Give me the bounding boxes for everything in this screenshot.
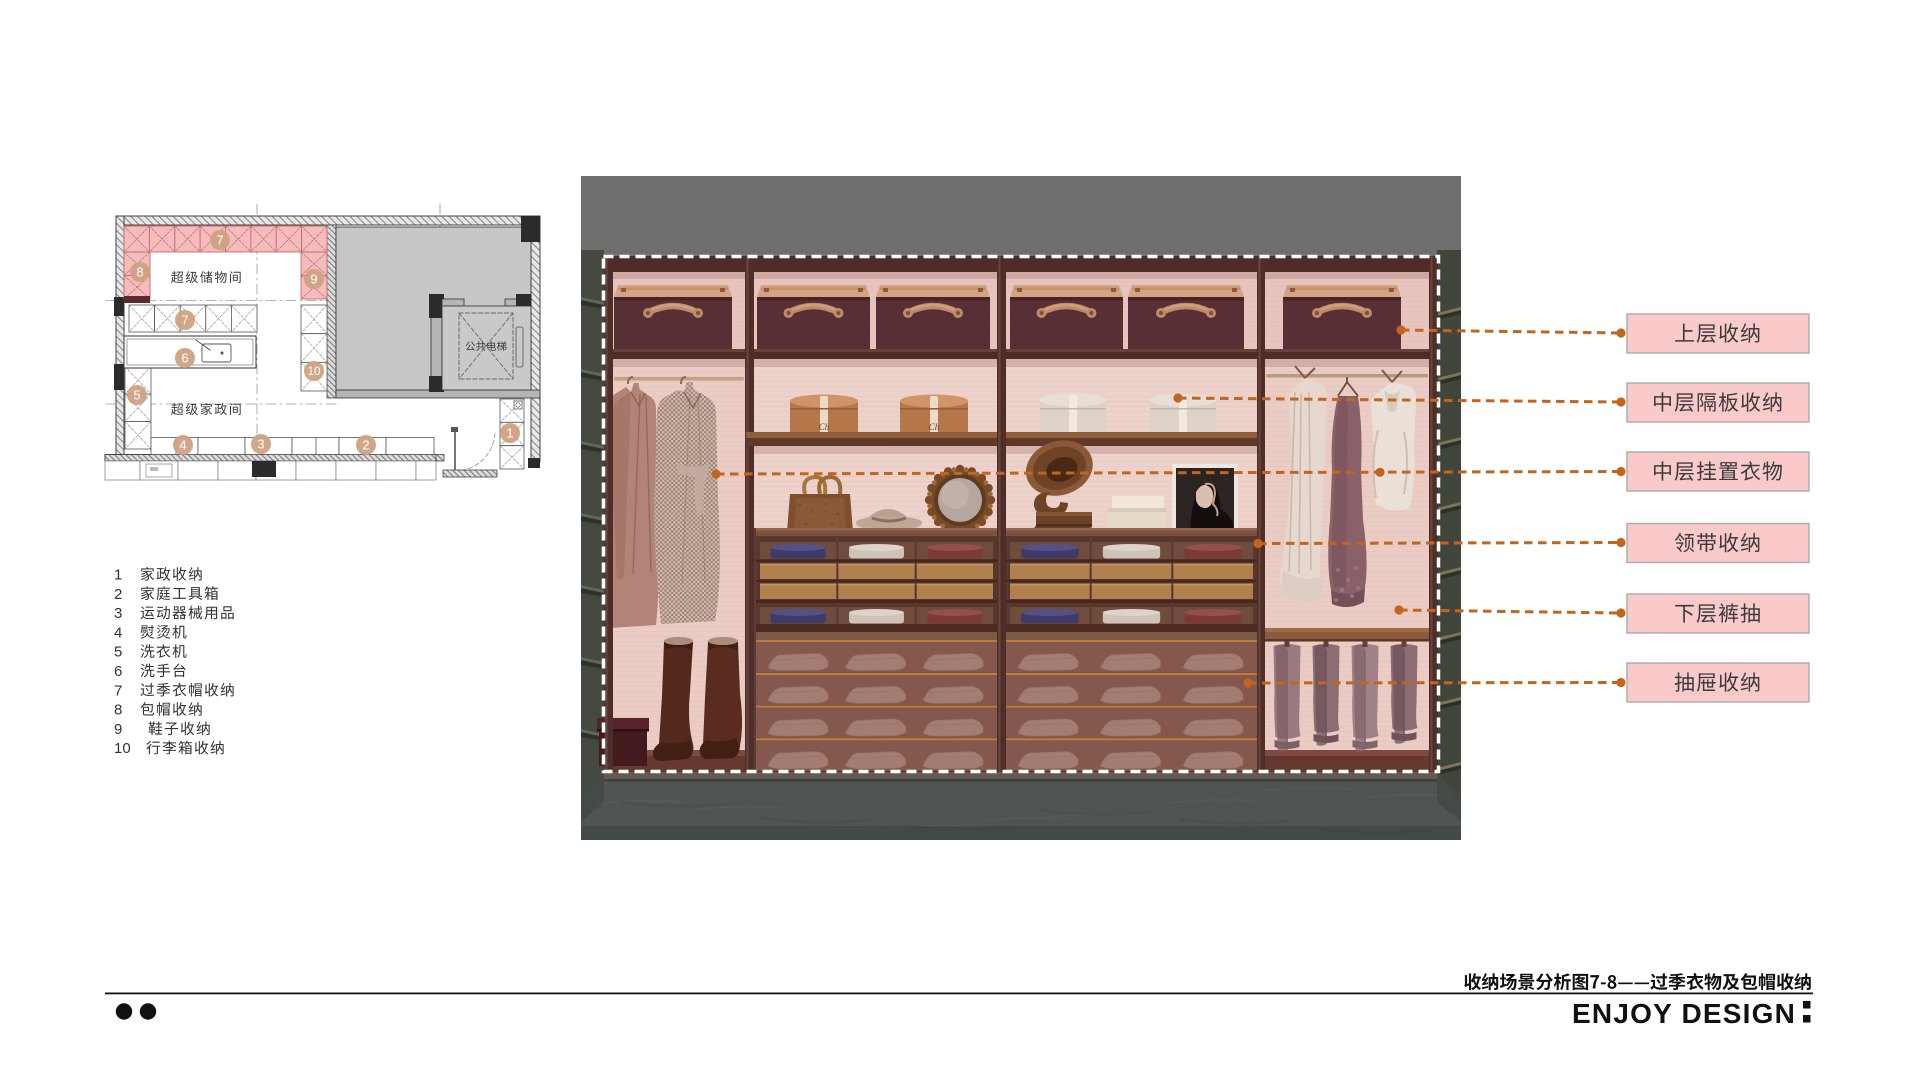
svg-text:Ch: Ch — [819, 422, 830, 432]
svg-text:10: 10 — [308, 366, 321, 378]
svg-text:7: 7 — [216, 233, 223, 248]
svg-text:8: 8 — [136, 265, 143, 280]
svg-text:8: 8 — [114, 702, 122, 719]
svg-text:ENJOY DESIGN: ENJOY DESIGN — [1572, 998, 1796, 1029]
svg-text:2: 2 — [114, 586, 122, 603]
svg-text:Ch: Ch — [929, 422, 940, 432]
svg-text:5: 5 — [133, 388, 140, 403]
svg-text:9: 9 — [310, 272, 317, 287]
svg-text:10: 10 — [114, 740, 131, 757]
svg-text:9: 9 — [114, 721, 122, 738]
svg-text:6: 6 — [181, 351, 188, 366]
svg-text:1: 1 — [506, 426, 513, 441]
svg-text:7: 7 — [114, 682, 122, 699]
svg-text:7: 7 — [181, 313, 188, 328]
svg-text:5: 5 — [114, 644, 122, 661]
svg-text:6: 6 — [114, 663, 122, 680]
svg-text:1: 1 — [114, 567, 122, 584]
svg-text:4: 4 — [114, 624, 122, 641]
svg-text:3: 3 — [257, 437, 264, 452]
svg-text:2: 2 — [362, 438, 369, 453]
svg-text:4: 4 — [179, 438, 186, 453]
svg-text:3: 3 — [114, 605, 122, 622]
